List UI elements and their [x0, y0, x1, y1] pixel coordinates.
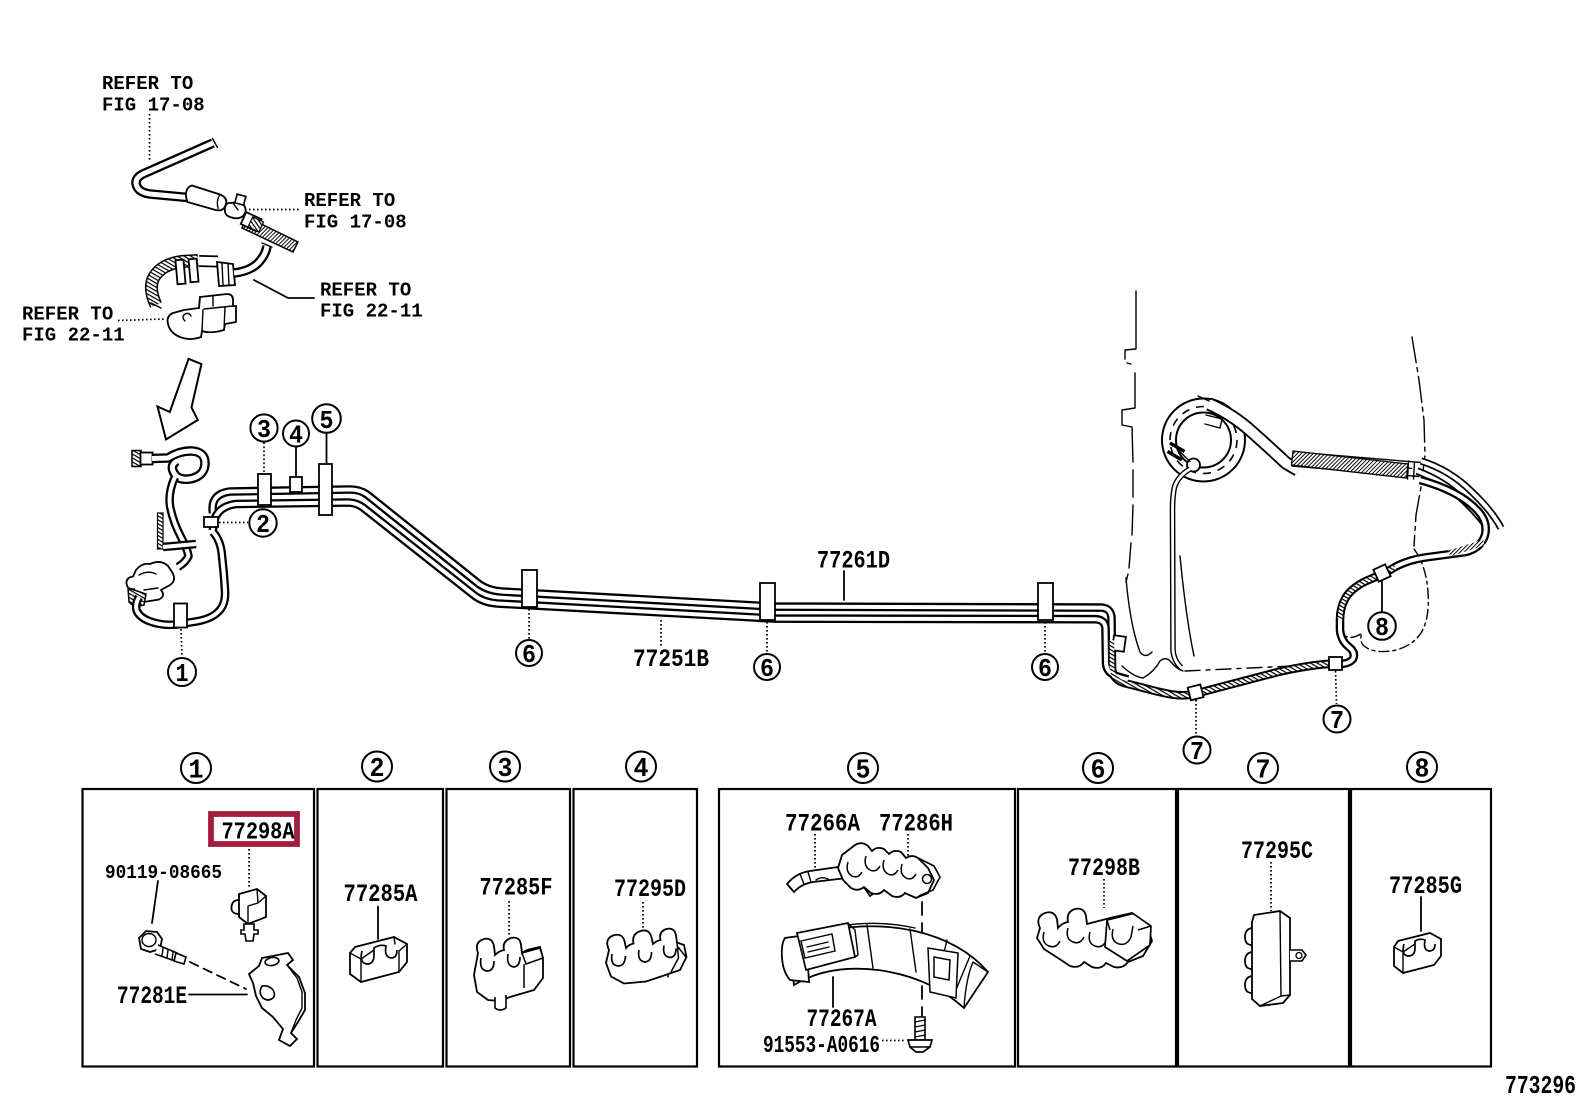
svg-text:REFER TO: REFER TO — [102, 73, 193, 95]
svg-text:3: 3 — [498, 755, 513, 785]
svg-text:77295C: 77295C — [1241, 837, 1313, 866]
svg-text:5: 5 — [320, 406, 334, 436]
svg-text:77281E: 77281E — [117, 982, 187, 1011]
svg-text:1: 1 — [176, 659, 189, 689]
svg-text:77298A: 77298A — [222, 820, 295, 847]
svg-text:7: 7 — [1256, 757, 1271, 787]
svg-text:6: 6 — [1038, 654, 1052, 684]
svg-text:90119-08665: 90119-08665 — [105, 862, 222, 884]
svg-text:2: 2 — [256, 510, 270, 540]
svg-text:77285G: 77285G — [1389, 872, 1462, 901]
svg-text:77295D: 77295D — [614, 875, 686, 904]
svg-text:4: 4 — [634, 755, 649, 785]
svg-text:3: 3 — [257, 415, 271, 445]
svg-text:FIG 22-11: FIG 22-11 — [320, 301, 423, 323]
svg-text:2: 2 — [370, 755, 385, 785]
svg-text:91553-A0616: 91553-A0616 — [763, 1033, 880, 1060]
svg-text:77251B: 77251B — [633, 645, 709, 674]
svg-text:FIG 22-11: FIG 22-11 — [22, 325, 125, 347]
svg-text:77266A: 77266A — [785, 810, 860, 839]
svg-text:6: 6 — [760, 654, 774, 684]
svg-text:FIG 17-08: FIG 17-08 — [304, 211, 407, 233]
svg-text:77298B: 77298B — [1068, 854, 1140, 883]
svg-text:77261D: 77261D — [817, 547, 890, 576]
svg-text:773296: 773296 — [1505, 1071, 1576, 1099]
svg-text:6: 6 — [1091, 757, 1106, 787]
svg-text:77286H: 77286H — [879, 810, 953, 839]
svg-text:REFER TO: REFER TO — [304, 190, 395, 212]
svg-text:6: 6 — [522, 640, 536, 670]
svg-text:7: 7 — [1190, 737, 1204, 767]
svg-text:4: 4 — [289, 421, 303, 451]
svg-text:77285A: 77285A — [344, 880, 418, 909]
svg-text:8: 8 — [1415, 756, 1430, 786]
svg-text:1: 1 — [189, 757, 204, 787]
svg-text:77285F: 77285F — [480, 874, 553, 903]
svg-text:REFER TO: REFER TO — [22, 304, 113, 326]
svg-text:77267A: 77267A — [807, 1005, 877, 1034]
svg-text:FIG 17-08: FIG 17-08 — [102, 94, 205, 116]
svg-text:REFER TO: REFER TO — [320, 280, 411, 302]
svg-text:8: 8 — [1375, 613, 1389, 643]
svg-text:5: 5 — [856, 757, 871, 787]
svg-text:7: 7 — [1330, 706, 1344, 736]
